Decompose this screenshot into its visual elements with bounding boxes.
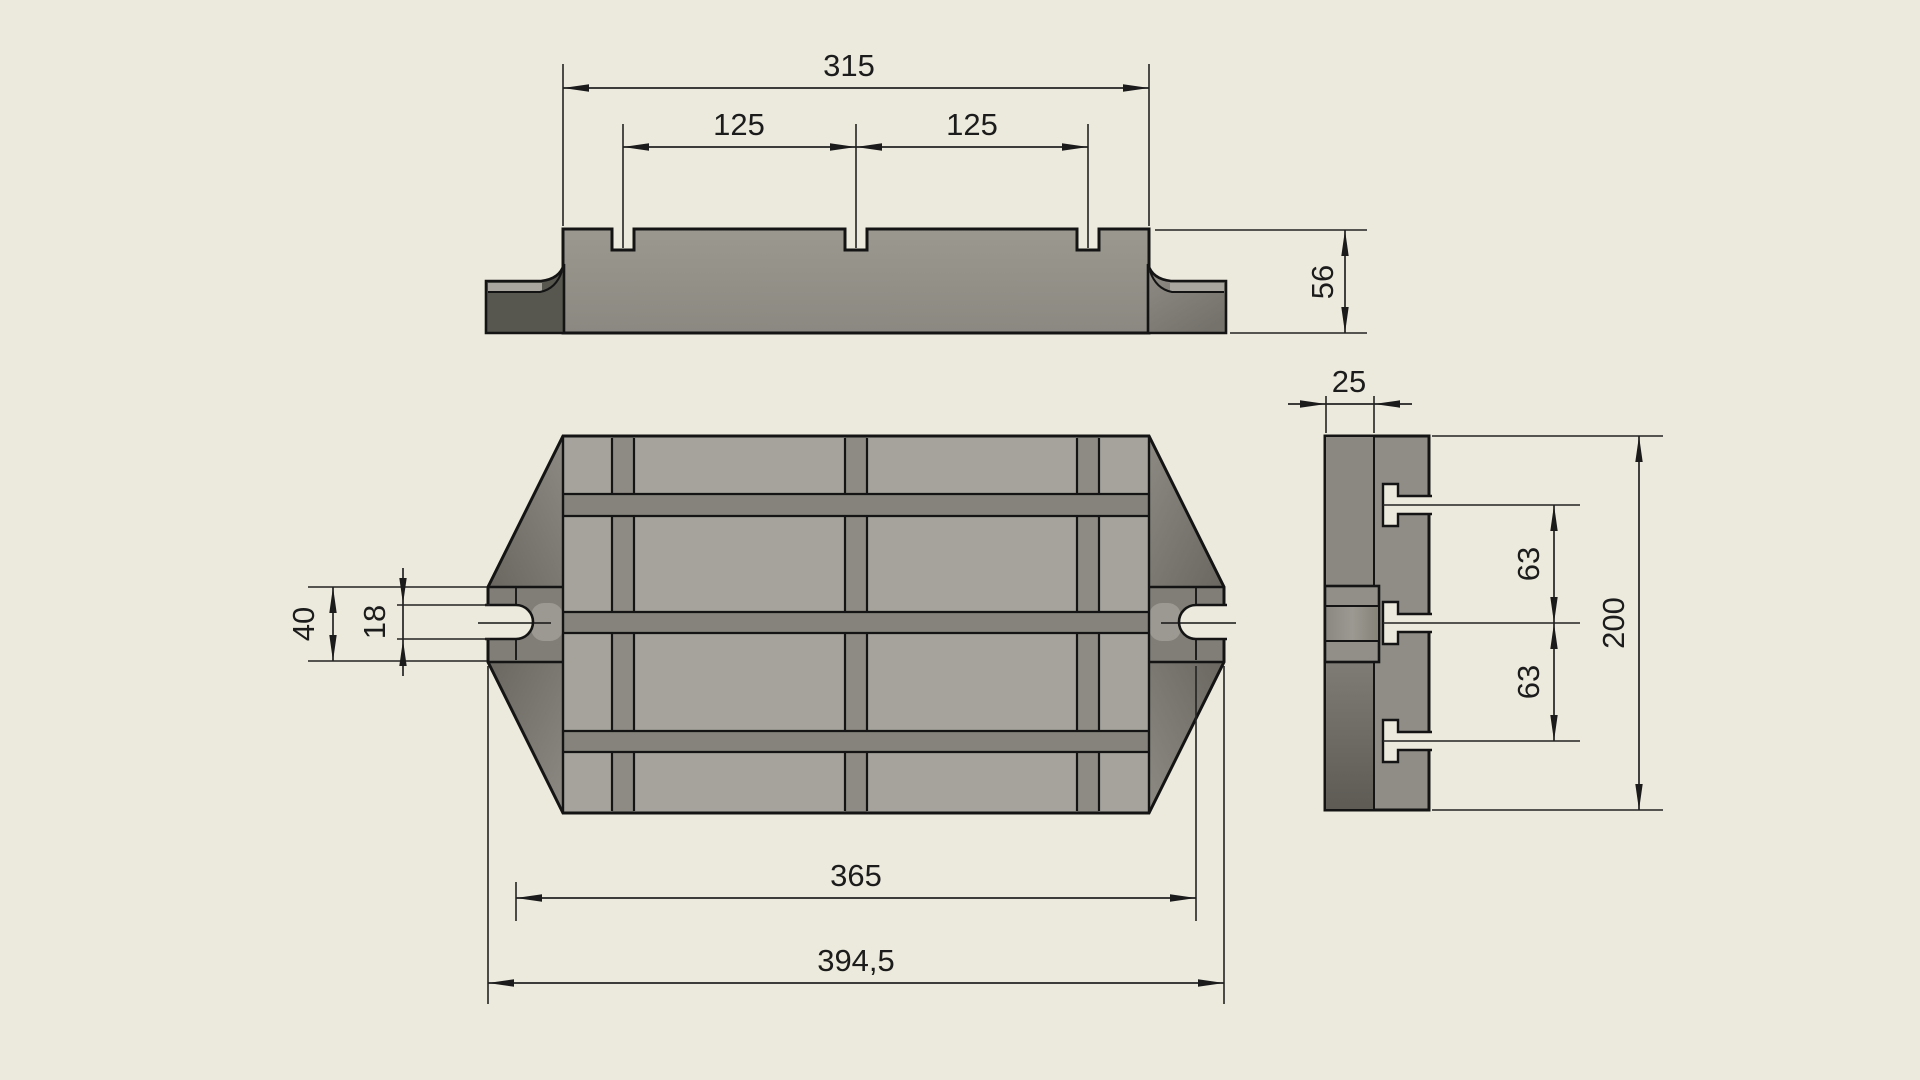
plan-right-notch <box>1179 605 1227 639</box>
dim-plan-tab-width: 40 <box>286 607 321 641</box>
drawing-canvas: 315 125 125 56 <box>0 0 1920 1080</box>
technical-drawing: 315 125 125 56 <box>0 0 1920 1080</box>
dim-side-pitch-upper: 63 <box>1511 547 1546 581</box>
dim-front-pitch-right: 125 <box>946 107 998 142</box>
dim-front-height: 56 <box>1305 265 1340 299</box>
plan-right-tab-shading <box>1149 603 1181 641</box>
front-left-lip-highlight <box>488 283 542 292</box>
side-lip-strip-lower <box>1326 662 1374 809</box>
dim-front-pitch-left: 125 <box>713 107 765 142</box>
dim-plan-slot-centers: 365 <box>830 858 882 893</box>
dim-side-pitch-lower: 63 <box>1511 665 1546 699</box>
side-tab-notch-floor <box>1327 607 1378 640</box>
dim-plan-slot-opening: 18 <box>357 605 392 639</box>
front-right-lip-highlight <box>1170 283 1224 292</box>
dim-side-lip-height: 25 <box>1332 364 1366 399</box>
plan-left-tab-shading <box>531 603 563 641</box>
dim-front-width: 315 <box>823 48 875 83</box>
dim-side-overall-width: 200 <box>1596 597 1631 649</box>
dim-plan-overall-length: 394,5 <box>817 943 895 978</box>
plan-left-notch <box>485 605 533 639</box>
